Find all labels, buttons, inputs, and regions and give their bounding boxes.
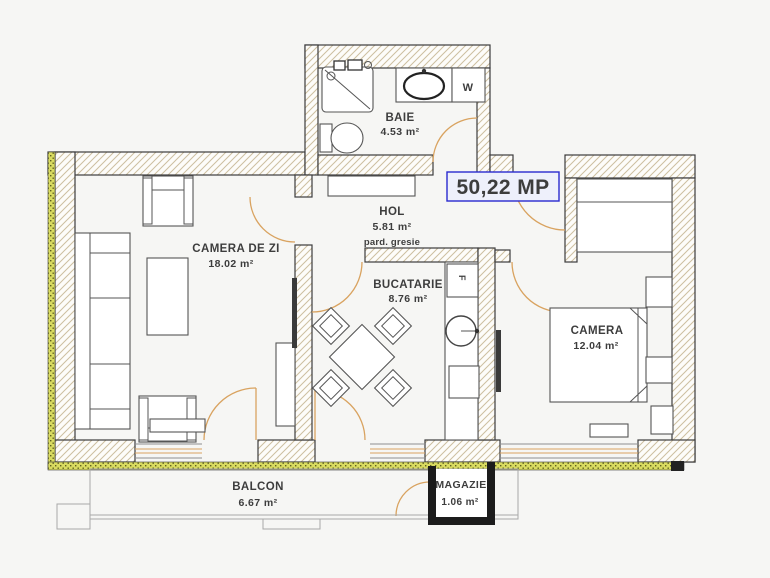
toilet-bowl (331, 123, 363, 153)
tv-stand (276, 343, 295, 426)
toilet-tank (320, 124, 332, 152)
bedroom-door-arc (512, 262, 562, 312)
wall-living-hall-stub (295, 175, 312, 197)
radiator-bedroom (590, 424, 628, 437)
hall-items: 50,22 MP (328, 172, 559, 201)
area-magazie: 1.06 m² (441, 497, 479, 508)
armchair-top (143, 176, 193, 226)
sink-tap (422, 69, 426, 73)
label-camera-de-zi: CAMERA DE ZI (192, 243, 279, 255)
kitchen-door-arc (312, 262, 362, 312)
area-camera: 12.04 m² (573, 340, 618, 352)
tv-living (292, 278, 297, 348)
dining-set (313, 308, 412, 407)
hall-cabinet (328, 176, 415, 196)
wall-bottom-pier-4 (638, 440, 695, 462)
stove (449, 366, 479, 398)
nightstand-1 (646, 277, 672, 307)
wall-bath-top (305, 45, 490, 68)
magazie-floor (436, 469, 487, 517)
bathroom-door-arc (433, 118, 477, 162)
wall-right (672, 178, 695, 462)
nightstand-2 (646, 357, 672, 383)
coffee-table (147, 258, 188, 335)
floor-plan-canvas: W 50,22 MP (0, 0, 770, 578)
magazie-wall-right (487, 462, 495, 522)
washing-machine-label: W (463, 82, 474, 94)
balcony-step (263, 519, 320, 529)
label-baie: BAIE (385, 112, 414, 124)
chair-nw (313, 308, 350, 345)
total-area-label: 50,22 MP (456, 176, 549, 199)
wardrobe (577, 179, 672, 252)
area-camera-de-zi: 18.02 m² (208, 258, 253, 270)
wall-left (55, 152, 75, 469)
balcony-side-step (57, 504, 90, 529)
living-balcony-door-arc (204, 388, 256, 440)
window-bedroom (500, 444, 638, 458)
label-camera: CAMERA (571, 325, 624, 337)
chair-sw (313, 370, 350, 407)
window-living (135, 444, 202, 458)
fridge-label: F (457, 275, 467, 281)
bed (550, 308, 647, 402)
wall-top-living (48, 152, 305, 175)
wall-bottom-pier-2 (258, 440, 315, 462)
wall-living-kitchen (295, 245, 312, 440)
kitchen-tap (475, 329, 479, 333)
chair-ne (375, 308, 412, 345)
area-bucatarie: 8.76 m² (389, 293, 428, 305)
radiator-living (150, 419, 205, 432)
area-baie: 4.53 m² (381, 126, 420, 138)
window-kitchen (370, 444, 425, 458)
wall-bedroom-stub (495, 250, 510, 262)
note-hol-floor: pard. gresie (364, 237, 420, 248)
magazie-door-arc (396, 482, 430, 516)
floor-plan-drawing: W 50,22 MP (0, 0, 770, 578)
wall-bottom-pier-1 (55, 440, 135, 462)
wall-hall-kitchen (365, 248, 478, 262)
sofa (75, 233, 130, 429)
nightstand-3 (651, 406, 673, 434)
windows (135, 444, 638, 458)
magazie (428, 462, 495, 525)
label-hol: HOL (379, 206, 404, 218)
area-balcon: 6.67 m² (239, 497, 278, 509)
wall-kitchen-bedroom (478, 248, 495, 440)
faucet-box-1 (334, 61, 345, 70)
label-bucatarie: BUCATARIE (373, 279, 443, 291)
magazie-wall-left (428, 466, 436, 522)
wall-bottom-pier-3 (425, 440, 500, 462)
magazie-wall-bottom (428, 517, 495, 525)
label-magazie: MAGAZIE (435, 479, 486, 491)
wall-top-right (565, 155, 695, 178)
living-room-furniture (75, 176, 297, 442)
tv-bedroom (496, 330, 501, 392)
bedroom-furniture (496, 179, 673, 437)
chair-se (375, 370, 412, 407)
wall-bath-left (305, 45, 318, 175)
label-balcon: BALCON (232, 481, 284, 493)
corner-block (671, 461, 684, 471)
wall-hall-bedroom (565, 178, 577, 262)
faucet-box-2 (348, 60, 362, 70)
living-door-arc (250, 197, 295, 242)
wall-bath-bottom (318, 155, 433, 175)
area-hol: 5.81 m² (373, 221, 412, 233)
insulation-strip-left (48, 152, 55, 469)
bathroom-fixtures: W (320, 60, 485, 153)
